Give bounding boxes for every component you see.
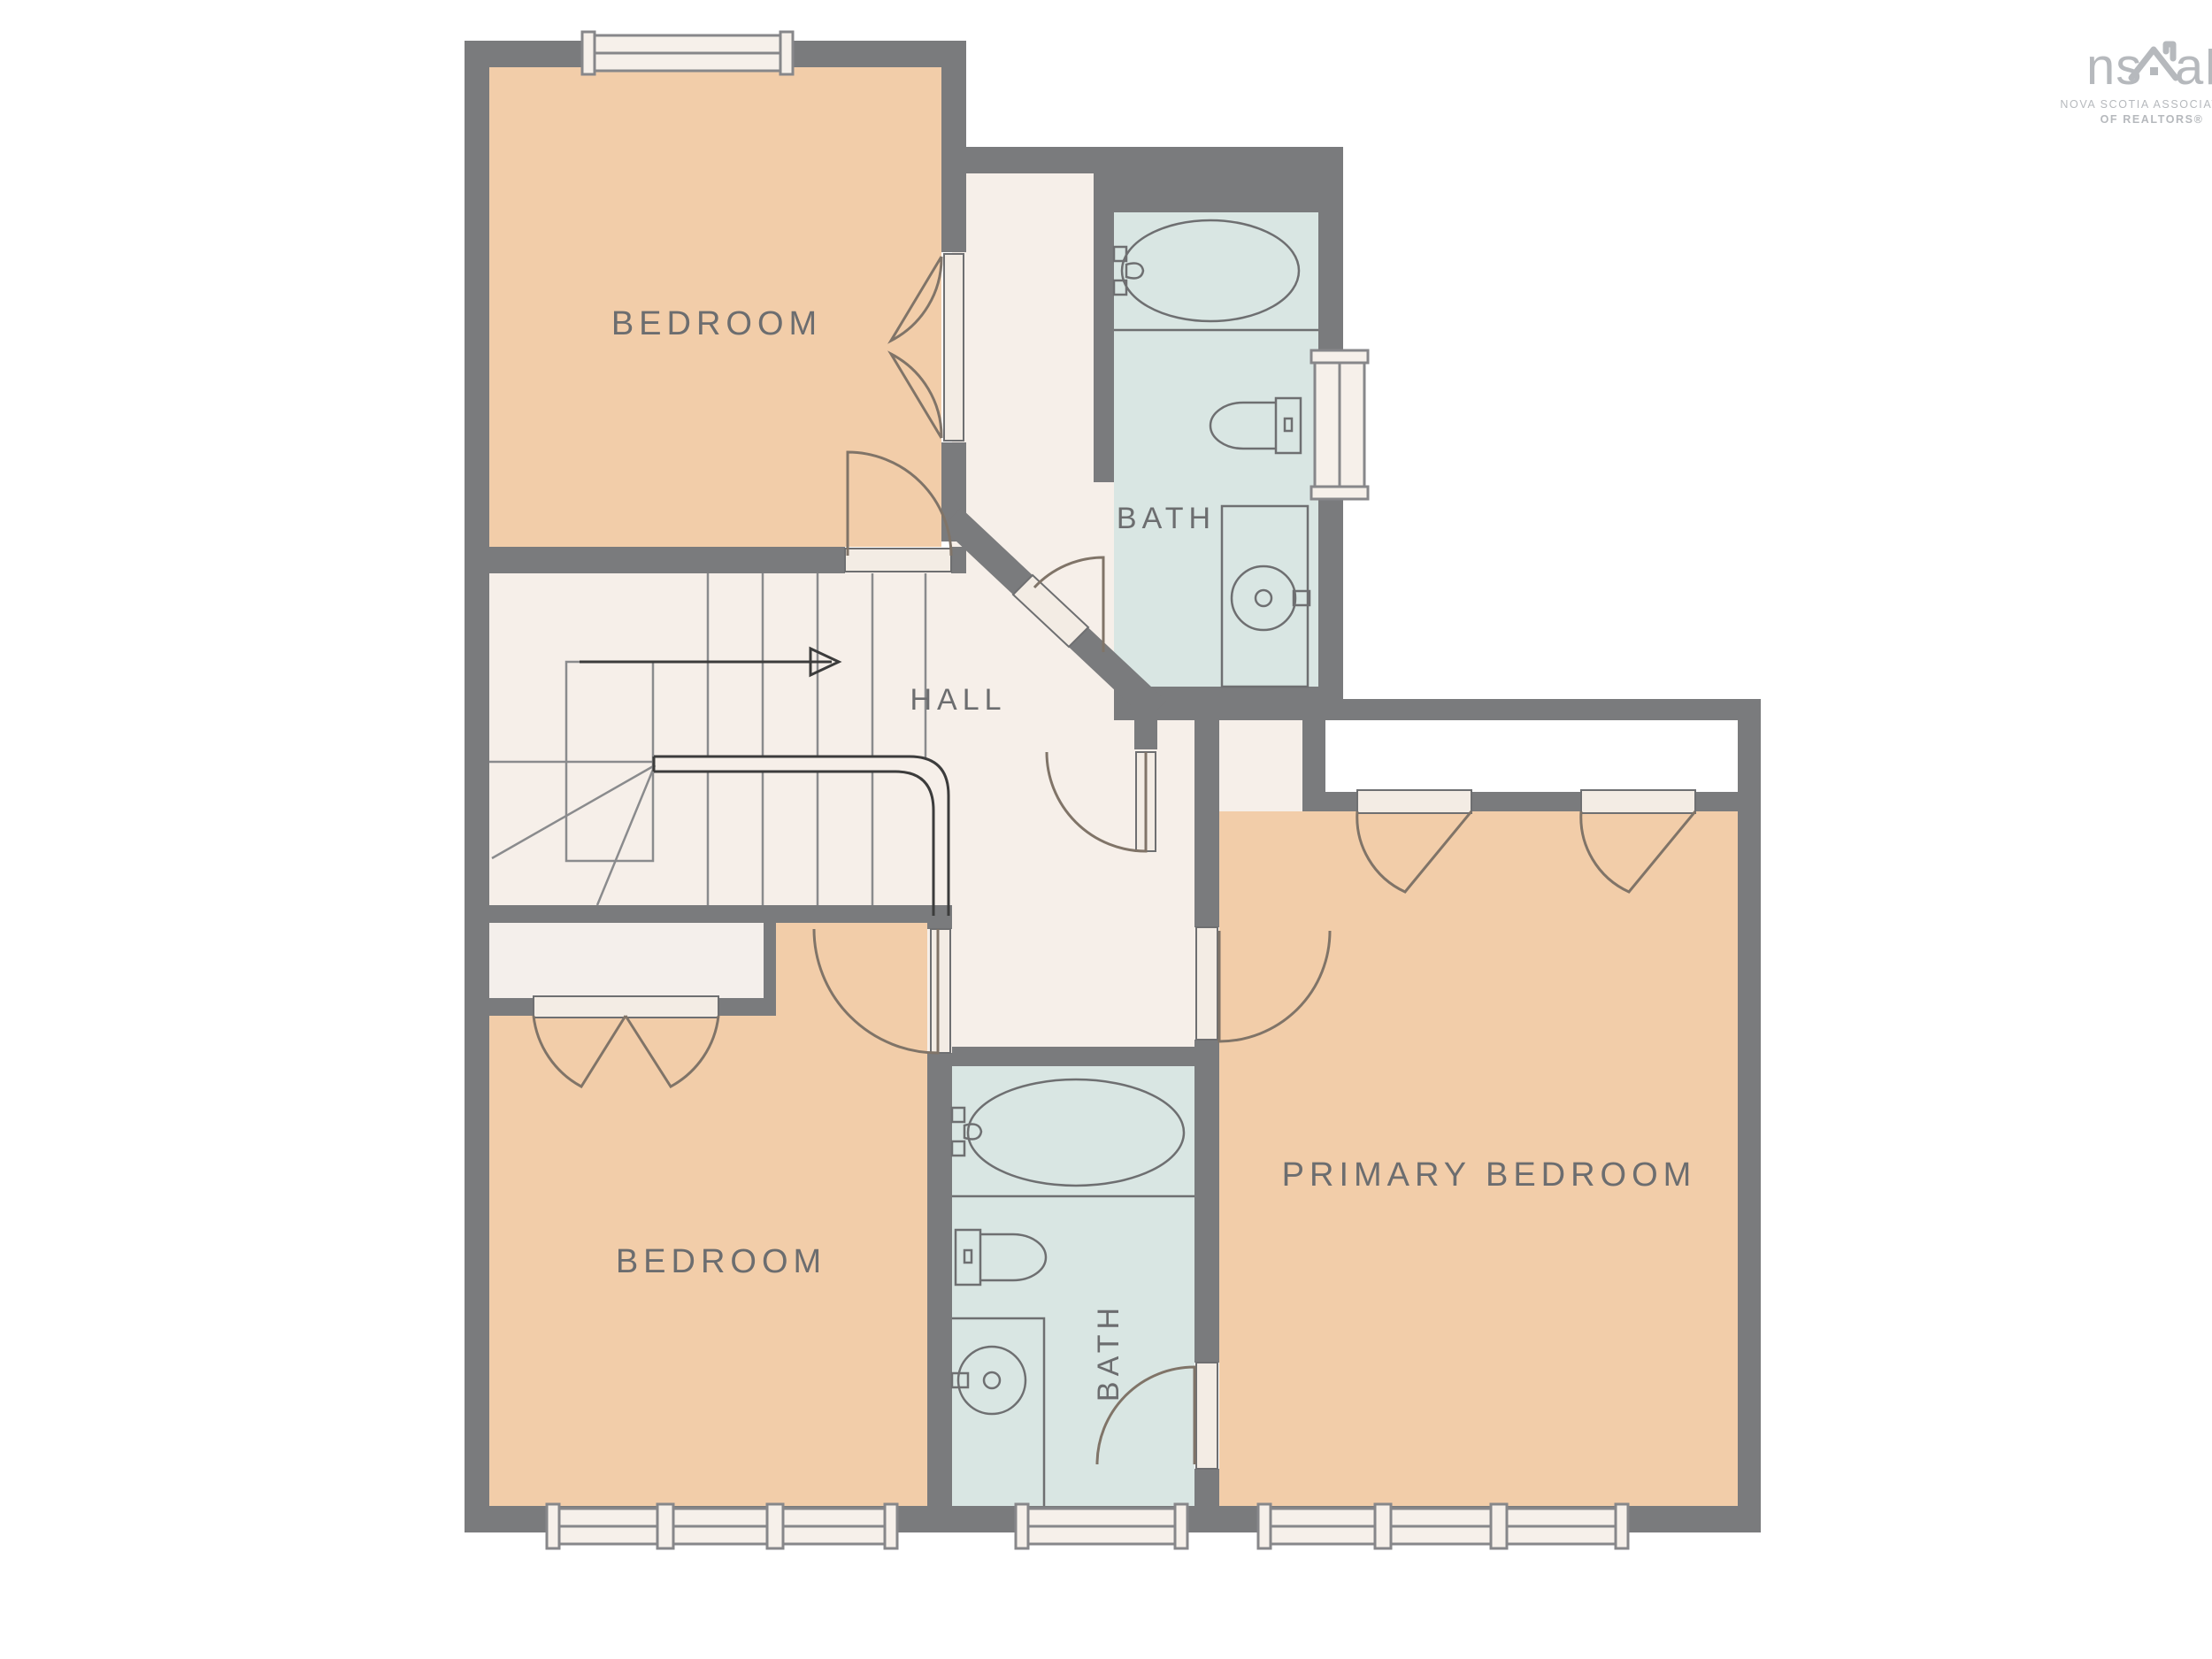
logo-word-right: aR	[2175, 38, 2212, 96]
label-hall: HALL	[910, 683, 1006, 717]
door-slab-bedroom-lower	[931, 929, 950, 1053]
logo-subline1: NOVA SCOTIA ASSOCIATION	[2060, 98, 2212, 111]
door-slab-bedroom-top	[845, 549, 951, 572]
label-bath-top: BATH	[1117, 502, 1216, 535]
closet-primary-floor	[1325, 720, 1738, 792]
door-slab-closet-primary-2	[1581, 790, 1695, 813]
label-bedroom-lower: BEDROOM	[616, 1243, 826, 1280]
room-bath-top-floor	[1114, 212, 1318, 687]
label-primary-bedroom: PRIMARY BEDROOM	[1282, 1156, 1697, 1194]
logo-subline2: OF REALTORS®	[2101, 113, 2204, 126]
floorplan-page: BEDROOM BATH HALL BEDROOM BATH PRIMARY B…	[0, 0, 2212, 1659]
door-slab-closet-lower	[534, 996, 718, 1018]
label-bath-lower: BATH	[1092, 1302, 1125, 1402]
door-slab-closet-primary-1	[1357, 790, 1471, 813]
door-slab-bedroom-top-double	[944, 254, 964, 441]
door-slab-bath-lower	[1196, 1363, 1217, 1469]
room-bath-lower-floor	[952, 1066, 1194, 1506]
logo-word-left: ns	[2086, 38, 2142, 96]
nsar-logo: ns aR NOVA SCOTIA ASSOCIATION OF REALTOR…	[2060, 38, 2212, 126]
closet-lower-left-floor	[489, 923, 764, 998]
label-bedroom-top: BEDROOM	[611, 305, 822, 342]
door-slab-primary	[1196, 927, 1217, 1040]
floorplan-canvas: BEDROOM BATH HALL BEDROOM BATH PRIMARY B…	[0, 0, 2212, 1659]
